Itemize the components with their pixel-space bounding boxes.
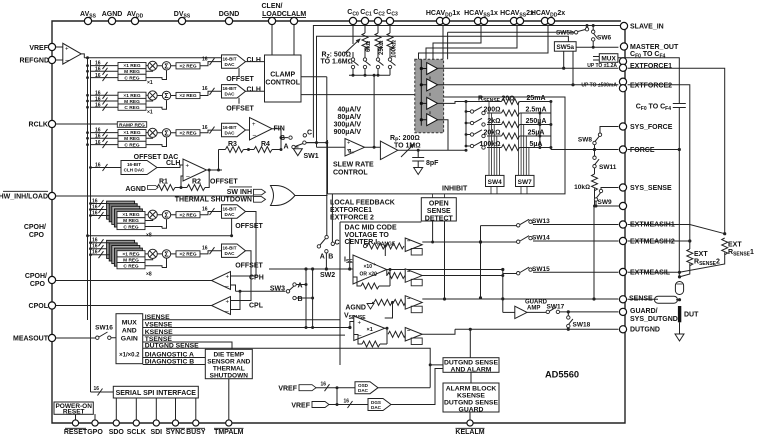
svg-text:R4: R4 xyxy=(261,141,270,148)
svg-text:DUT: DUT xyxy=(684,312,699,319)
svg-text:×1: ×1 xyxy=(147,110,153,116)
svg-text:SERIAL SPI INTERFACE: SERIAL SPI INTERFACE xyxy=(116,390,197,397)
svg-text:CONTROL: CONTROL xyxy=(265,80,300,87)
svg-text:DUTGND SENSE: DUTGND SENSE xyxy=(444,399,498,406)
svg-text:CPO: CPO xyxy=(30,281,46,288)
svg-text:DGND: DGND xyxy=(219,11,240,18)
svg-text:THERMAL SHUTDOWN: THERMAL SHUTDOWN xyxy=(175,196,252,203)
svg-text:16: 16 xyxy=(92,211,98,217)
svg-text:16: 16 xyxy=(95,67,101,73)
svg-text:SW2: SW2 xyxy=(320,272,335,279)
svg-text:8pF: 8pF xyxy=(426,160,439,167)
svg-text:KELALM: KELALM xyxy=(455,429,484,436)
svg-text:16: 16 xyxy=(202,206,208,212)
svg-text:EXTFORCE1: EXTFORCE1 xyxy=(630,63,672,70)
svg-text:16: 16 xyxy=(344,399,350,405)
svg-text:×10: ×10 xyxy=(364,264,373,270)
svg-text:DAC: DAC xyxy=(358,388,369,393)
svg-text:SW15: SW15 xyxy=(532,266,550,273)
svg-text:DUTGND SENSE: DUTGND SENSE xyxy=(444,359,498,366)
svg-text:+: + xyxy=(252,122,256,128)
svg-text:UP TO ±500mA: UP TO ±500mA xyxy=(581,83,617,89)
svg-text:16: 16 xyxy=(321,382,327,388)
svg-text:AMP: AMP xyxy=(527,305,540,311)
svg-text:6kΩ: 6kΩ xyxy=(366,40,372,52)
svg-text:40µA/V: 40µA/V xyxy=(338,107,362,114)
svg-text:TO 1.6MΩ: TO 1.6MΩ xyxy=(321,59,353,66)
svg-text:SW5a: SW5a xyxy=(556,44,574,51)
svg-text:B: B xyxy=(298,296,303,303)
svg-text:CPO: CPO xyxy=(29,232,45,239)
svg-text:200Ω: 200Ω xyxy=(483,107,500,114)
svg-text:25kΩ: 25kΩ xyxy=(379,40,385,55)
svg-text:VREF: VREF xyxy=(291,403,310,410)
svg-text:SCLK: SCLK xyxy=(127,429,146,436)
svg-text:SW8: SW8 xyxy=(578,137,592,144)
svg-text:AND ALARM: AND ALARM xyxy=(451,366,492,373)
svg-text:SW4: SW4 xyxy=(488,179,502,186)
svg-text:RESET: RESET xyxy=(64,429,88,436)
svg-text:CPOL: CPOL xyxy=(29,303,49,310)
svg-text:R2: R2 xyxy=(192,179,201,186)
svg-text:AGND: AGND xyxy=(345,305,366,312)
svg-text:SYS_DUTGND: SYS_DUTGND xyxy=(630,316,678,323)
svg-text:16: 16 xyxy=(95,140,101,146)
svg-text:B: B xyxy=(280,135,285,142)
svg-text:R1: R1 xyxy=(159,179,168,186)
svg-text:×1: ×1 xyxy=(367,327,373,333)
svg-text:SENSOR AND: SENSOR AND xyxy=(207,359,250,366)
svg-text:+: + xyxy=(225,300,229,306)
svg-text:25µA: 25µA xyxy=(528,130,545,137)
svg-text:2.5mA: 2.5mA xyxy=(525,107,546,114)
svg-text:−: − xyxy=(65,58,69,65)
svg-text:CPL: CPL xyxy=(249,303,264,310)
svg-text:RAMP REG: RAMP REG xyxy=(119,122,145,128)
svg-text:CPOH/: CPOH/ xyxy=(24,224,46,231)
svg-text:16: 16 xyxy=(95,96,101,102)
svg-text:VOLTAGE TO: VOLTAGE TO xyxy=(345,232,390,239)
svg-text:−: − xyxy=(252,133,256,140)
svg-text:SW6: SW6 xyxy=(597,35,611,42)
svg-text:EXT: EXT xyxy=(694,251,708,258)
svg-text:VREF: VREF xyxy=(29,45,48,52)
svg-text:16: 16 xyxy=(95,163,101,169)
svg-text:B: B xyxy=(328,254,333,261)
svg-text:16: 16 xyxy=(202,57,208,63)
svg-text:OFFSET: OFFSET xyxy=(226,106,254,113)
svg-text:SHUTDOWN: SHUTDOWN xyxy=(210,373,249,380)
svg-text:BUSY: BUSY xyxy=(186,429,206,436)
svg-text:MASTER_OUT: MASTER_OUT xyxy=(630,44,679,51)
svg-text:DIE TEMP: DIE TEMP xyxy=(213,352,244,359)
svg-text:GUARD/: GUARD/ xyxy=(630,308,658,315)
svg-text:AND: AND xyxy=(122,328,137,335)
svg-text:OFFSET: OFFSET xyxy=(235,263,263,270)
svg-text:VREF: VREF xyxy=(278,386,297,393)
svg-text:SDO: SDO xyxy=(109,429,125,436)
svg-text:A: A xyxy=(298,283,303,290)
svg-text:EXT: EXT xyxy=(728,242,742,249)
svg-text:16: 16 xyxy=(202,86,208,92)
svg-text:+: + xyxy=(186,164,190,170)
svg-text:CLH DAC: CLH DAC xyxy=(124,168,145,173)
svg-text:LOCAL FEEDBACK: LOCAL FEEDBACK xyxy=(330,200,395,207)
svg-text:REFGND: REFGND xyxy=(19,58,49,65)
svg-text:SW1: SW1 xyxy=(304,153,319,160)
svg-text:SW INH: SW INH xyxy=(227,189,252,196)
svg-text:OFFSET: OFFSET xyxy=(235,223,263,230)
svg-text:SDI: SDI xyxy=(150,429,162,436)
svg-text:C: C xyxy=(307,130,312,137)
svg-text:MEASOUT: MEASOUT xyxy=(13,336,49,343)
svg-text:SW9: SW9 xyxy=(598,199,612,206)
svg-text:16: 16 xyxy=(202,125,208,131)
svg-text:−: − xyxy=(186,174,190,181)
svg-text:SYS_FORCE: SYS_FORCE xyxy=(630,124,673,131)
svg-text:OPEN: OPEN xyxy=(429,201,449,208)
svg-text:16: 16 xyxy=(94,386,100,392)
svg-text:SW3: SW3 xyxy=(270,286,285,293)
svg-text:AGND: AGND xyxy=(125,186,146,193)
svg-text:CLH: CLH xyxy=(247,87,261,94)
svg-text:MUX: MUX xyxy=(601,55,616,62)
svg-text:−: − xyxy=(225,309,229,316)
svg-text:A: A xyxy=(320,254,325,261)
svg-text:EXTMEASIL: EXTMEASIL xyxy=(630,270,671,277)
svg-text:SW5b: SW5b xyxy=(556,30,574,37)
svg-text:16: 16 xyxy=(95,103,101,109)
svg-text:300µA/V: 300µA/V xyxy=(334,122,362,129)
svg-text:CLAMP: CLAMP xyxy=(270,72,295,79)
svg-text:CLH: CLH xyxy=(247,57,261,64)
svg-text:×1/×0.2: ×1/×0.2 xyxy=(119,353,140,359)
svg-text:AD5560: AD5560 xyxy=(545,370,579,380)
svg-text:CPOH/: CPOH/ xyxy=(25,273,47,280)
svg-text:KSENSE: KSENSE xyxy=(457,392,485,399)
svg-text:25mA: 25mA xyxy=(526,95,545,102)
svg-text:16: 16 xyxy=(95,134,101,140)
svg-text:TO 1MΩ: TO 1MΩ xyxy=(394,143,421,150)
svg-text:GAIN: GAIN xyxy=(121,336,138,343)
svg-text:SYS_SENSE: SYS_SENSE xyxy=(630,185,672,192)
svg-text:SW11: SW11 xyxy=(599,164,617,171)
svg-text:+: + xyxy=(373,262,376,268)
svg-text:HW_INH/LOAD: HW_INH/LOAD xyxy=(0,194,48,201)
svg-text:EXTFORCE 2: EXTFORCE 2 xyxy=(330,215,374,222)
svg-text:MUX: MUX xyxy=(122,320,138,327)
svg-text:DAC MID CODE: DAC MID CODE xyxy=(345,225,397,232)
svg-text:OFFSET: OFFSET xyxy=(226,76,254,83)
svg-text:DUTGND: DUTGND xyxy=(630,326,660,333)
svg-text:SW16: SW16 xyxy=(95,325,113,332)
svg-text:16: 16 xyxy=(92,250,98,256)
svg-text:SW17: SW17 xyxy=(547,303,565,310)
svg-text:×8: ×8 xyxy=(146,272,152,278)
svg-text:SW18: SW18 xyxy=(573,322,591,329)
svg-text:EXTMEASIH2: EXTMEASIH2 xyxy=(630,239,675,246)
svg-text:EXTFORCE1: EXTFORCE1 xyxy=(330,207,372,214)
svg-text:SW14: SW14 xyxy=(532,234,550,241)
svg-text:250µA: 250µA xyxy=(526,118,547,125)
svg-text:16-BIT: 16-BIT xyxy=(127,162,141,167)
svg-text:AGND: AGND xyxy=(102,11,123,18)
svg-text:900µA/V: 900µA/V xyxy=(334,129,362,136)
svg-text:CLH: CLH xyxy=(166,160,180,167)
svg-text:+: + xyxy=(358,321,362,327)
svg-text:SYNC: SYNC xyxy=(166,429,185,436)
svg-text:×1: ×1 xyxy=(147,80,153,86)
svg-text:GUARD: GUARD xyxy=(459,406,484,413)
svg-text:INHIBIT: INHIBIT xyxy=(442,186,468,193)
svg-text:A: A xyxy=(283,144,288,151)
svg-text:16: 16 xyxy=(202,246,208,252)
svg-text:CLEN/: CLEN/ xyxy=(262,3,283,10)
svg-text:SW13: SW13 xyxy=(532,218,550,225)
svg-text:C: C xyxy=(335,240,340,247)
svg-text:FORCE: FORCE xyxy=(630,147,655,154)
svg-text:ALARM BLOCK: ALARM BLOCK xyxy=(446,385,497,392)
svg-text:+: + xyxy=(225,275,229,281)
svg-text:GPO: GPO xyxy=(87,429,103,436)
svg-text:RESET: RESET xyxy=(63,409,85,416)
svg-text:TMPALM: TMPALM xyxy=(214,429,244,436)
svg-text:SLEW RATE: SLEW RATE xyxy=(333,162,374,169)
svg-text:−: − xyxy=(225,284,229,291)
svg-text:OR ×20: OR ×20 xyxy=(360,272,378,278)
svg-text:DETECT: DETECT xyxy=(425,215,454,222)
svg-text:10kΩ: 10kΩ xyxy=(574,184,590,191)
svg-text:+: + xyxy=(65,47,69,53)
svg-text:THERMAL: THERMAL xyxy=(213,366,245,373)
svg-text:SW7: SW7 xyxy=(518,179,532,186)
svg-text:SENSE: SENSE xyxy=(427,208,451,215)
svg-text:EXTFORCE2: EXTFORCE2 xyxy=(630,82,672,89)
svg-text:RCLK: RCLK xyxy=(29,122,48,129)
svg-text:SLAVE_IN: SLAVE_IN xyxy=(630,24,664,31)
svg-text:+: + xyxy=(347,141,350,147)
svg-text:80µA/V: 80µA/V xyxy=(338,114,362,121)
svg-text:DAC: DAC xyxy=(371,405,382,410)
svg-text:OFFSET: OFFSET xyxy=(210,179,238,186)
svg-text:100kΩ: 100kΩ xyxy=(392,40,398,58)
svg-text:16: 16 xyxy=(95,73,101,79)
svg-text:CONTROL: CONTROL xyxy=(333,170,368,177)
